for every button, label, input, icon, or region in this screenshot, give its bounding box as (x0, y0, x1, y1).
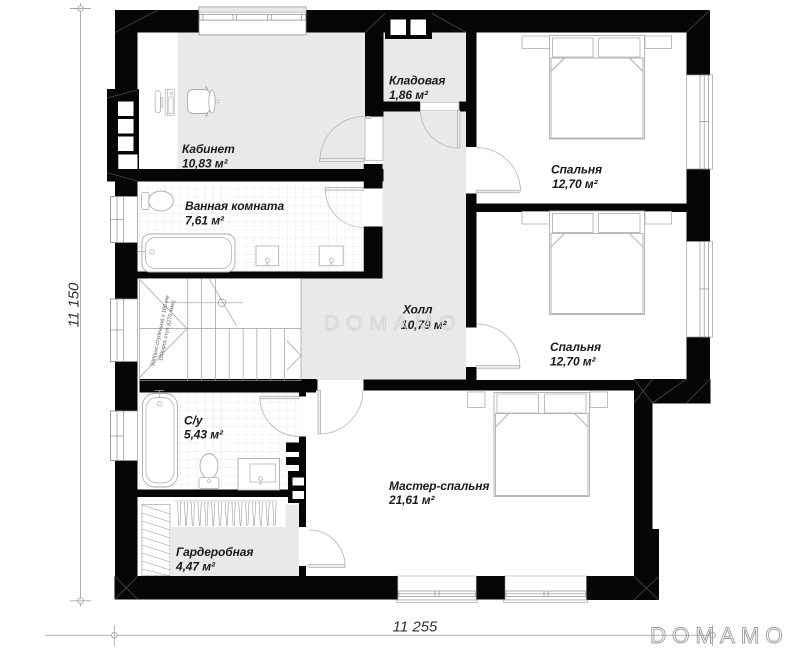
svg-text:5,43 м²: 5,43 м² (184, 428, 224, 442)
svg-text:12,70 м²: 12,70 м² (552, 177, 599, 191)
svg-text:Ванная комната: Ванная комната (185, 199, 284, 213)
svg-text:11 255: 11 255 (393, 619, 438, 636)
svg-text:Гардеробная: Гардеробная (176, 545, 253, 559)
svg-text:DOMAMO: DOMAMO (324, 311, 462, 335)
svg-text:10,83 м²: 10,83 м² (182, 157, 229, 171)
svg-text:1,86 м²: 1,86 м² (389, 88, 429, 102)
svg-text:Спальня: Спальня (551, 163, 602, 177)
svg-text:С/у: С/у (184, 414, 204, 428)
svg-text:Кладовая: Кладовая (389, 74, 445, 88)
svg-text:Спальня: Спальня (550, 340, 601, 354)
svg-text:7,61 м²: 7,61 м² (185, 214, 225, 228)
svg-text:12,70 м²: 12,70 м² (550, 355, 597, 369)
svg-text:4,47 м²: 4,47 м² (175, 559, 216, 573)
svg-text:11 150: 11 150 (66, 282, 83, 327)
svg-text:Мастер-спальня: Мастер-спальня (389, 479, 489, 493)
svg-text:Кабинет: Кабинет (182, 142, 235, 156)
svg-text:21,61 м²: 21,61 м² (388, 493, 436, 507)
svg-text:DOMAMO: DOMAMO (650, 623, 789, 648)
